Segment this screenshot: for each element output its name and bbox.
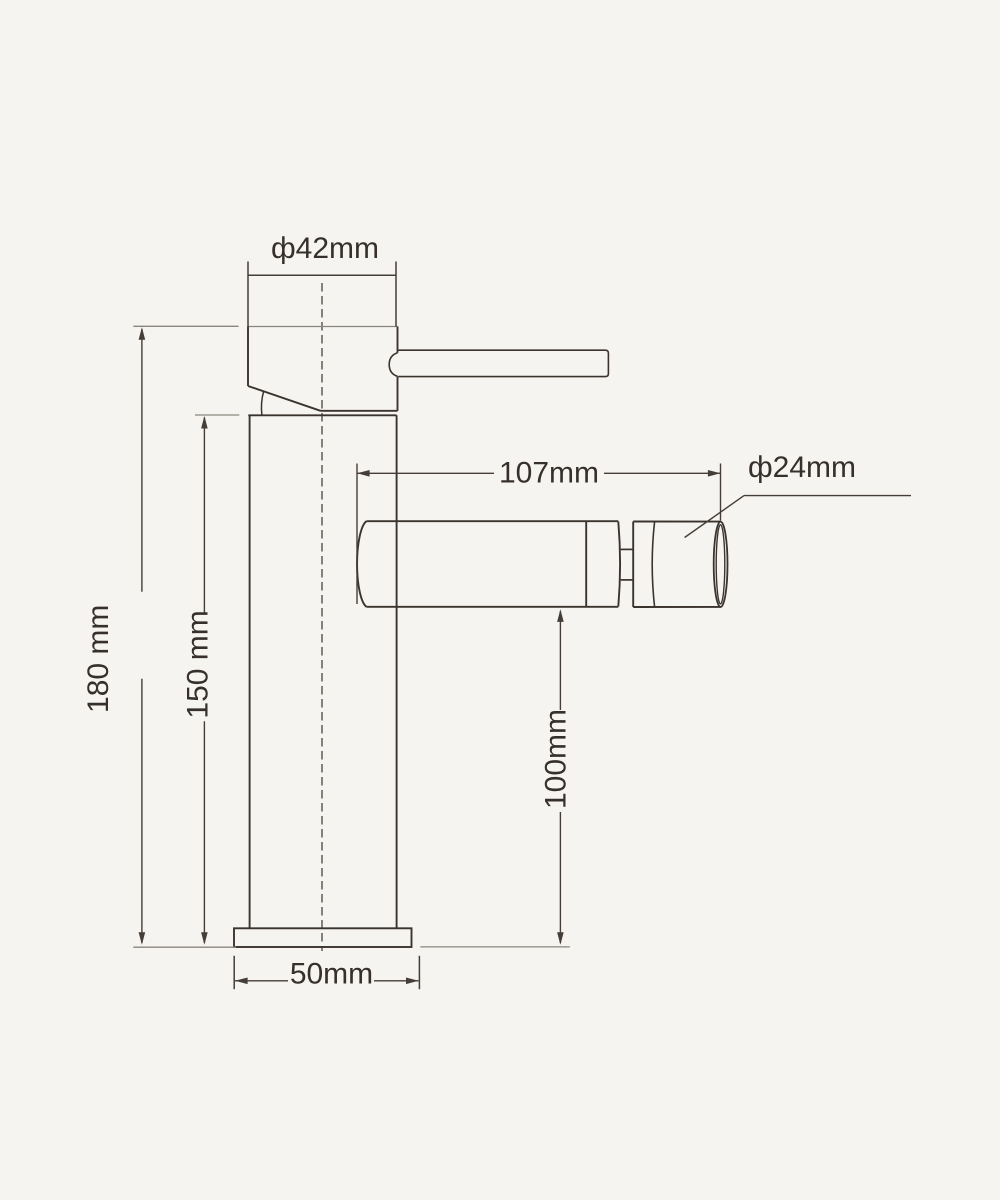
svg-text:ф24mm: ф24mm <box>748 451 856 484</box>
svg-text:ф42mm: ф42mm <box>271 232 379 265</box>
svg-text:50mm: 50mm <box>290 957 373 990</box>
svg-text:150 mm: 150 mm <box>182 610 215 718</box>
svg-text:107mm: 107mm <box>499 457 599 490</box>
svg-text:100mm: 100mm <box>539 709 572 809</box>
svg-text:180 mm: 180 mm <box>82 605 115 713</box>
